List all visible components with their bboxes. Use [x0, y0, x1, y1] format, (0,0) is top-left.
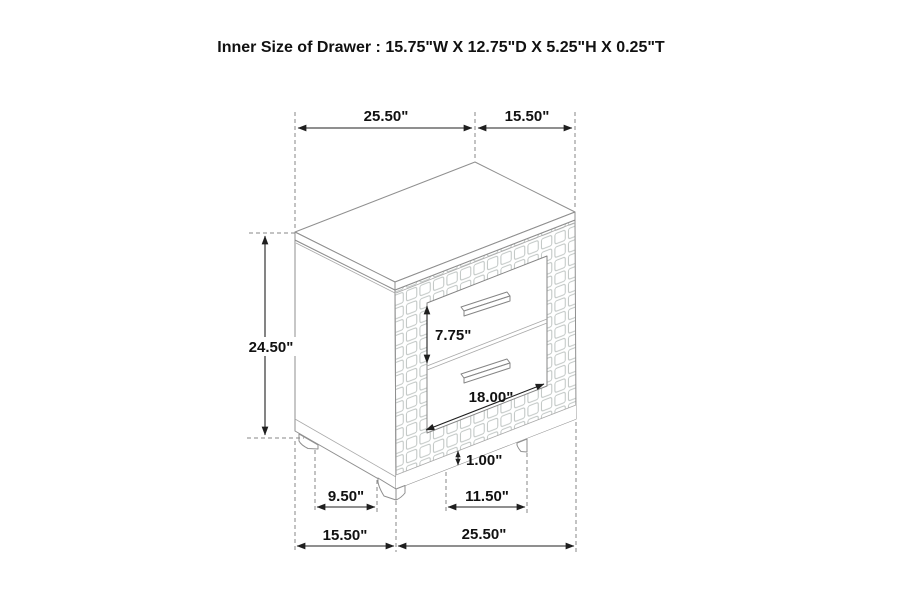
dim-top-width-label: 25.50"	[364, 108, 409, 125]
dim-bottom-width-label: 25.50"	[462, 526, 507, 543]
dim-drawer-height-label: 7.75"	[435, 327, 471, 344]
diagram-title: Inner Size of Drawer : 15.75"W X 12.75"D…	[217, 39, 665, 56]
dim-side-leg-span-label: 9.50"	[328, 488, 364, 505]
nightstand-dimension-drawing: Inner Size of Drawer : 15.75"W X 12.75"D…	[0, 0, 900, 600]
dim-rail-height-label: 1.00"	[466, 452, 502, 469]
dim-bottom-depth-label: 15.50"	[323, 527, 368, 544]
dimension-diagram: Inner Size of Drawer : 15.75"W X 12.75"D…	[0, 0, 900, 600]
dim-front-leg-span-label: 11.50"	[465, 488, 509, 505]
dim-drawer-width-label: 18.00"	[469, 389, 514, 406]
dim-height-label: 24.50"	[249, 339, 294, 356]
dim-top-depth-label: 15.50"	[505, 108, 550, 125]
